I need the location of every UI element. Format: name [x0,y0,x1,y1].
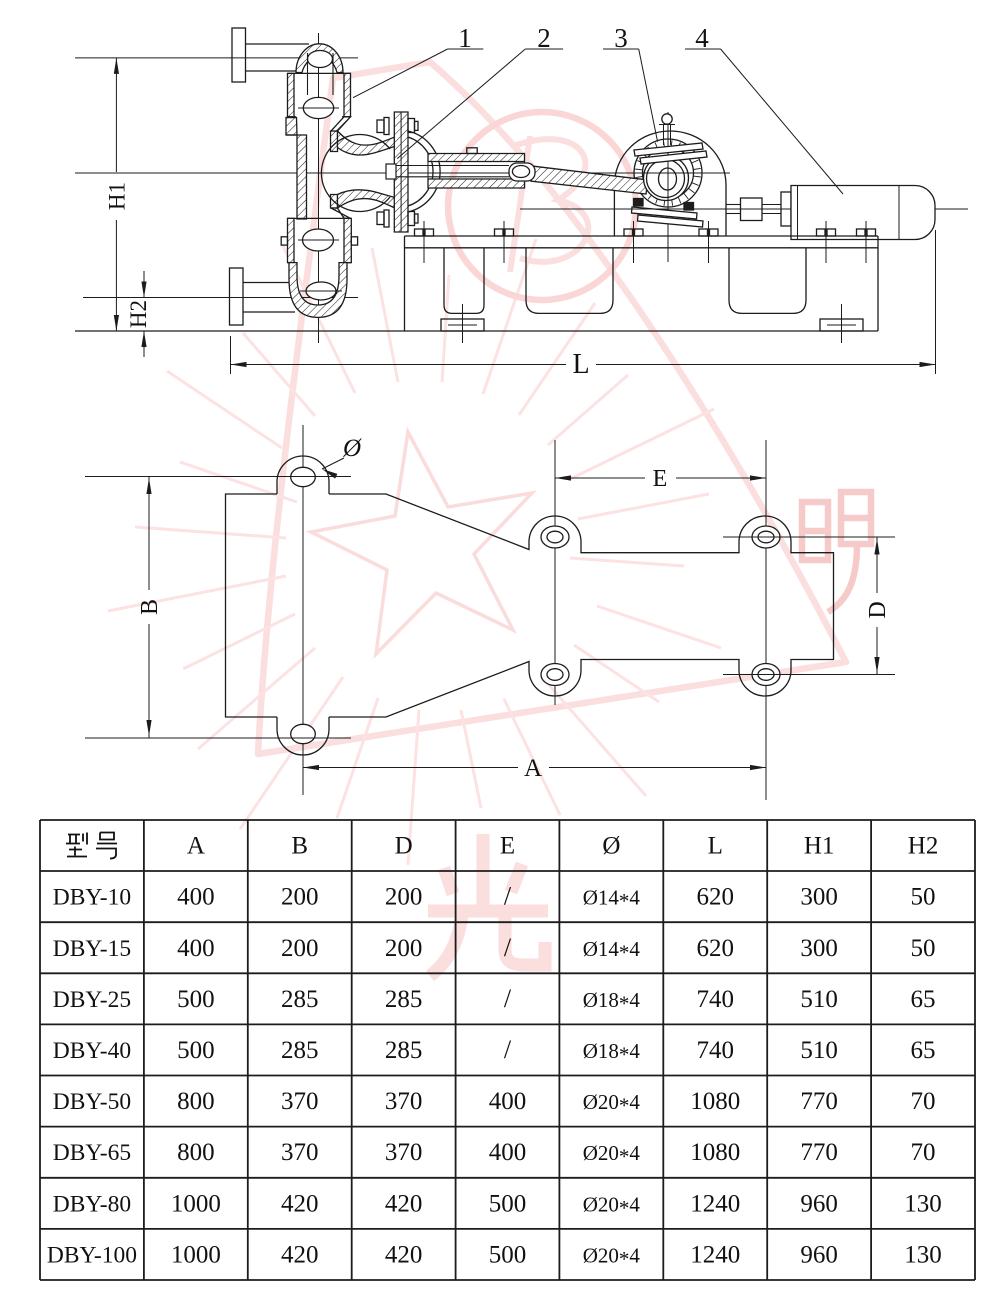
svg-text:370: 370 [385,1088,423,1115]
svg-text:200: 200 [385,935,423,962]
svg-text:1000: 1000 [171,1190,221,1217]
svg-text:/: / [504,1035,512,1064]
svg-text:1080: 1080 [690,1139,740,1166]
svg-text:740: 740 [697,986,735,1013]
svg-text:A: A [187,833,205,860]
svg-text:130: 130 [904,1190,942,1217]
svg-text:130: 130 [904,1241,942,1268]
svg-text:B: B [291,833,308,860]
svg-text:DBY-25: DBY-25 [53,987,131,1013]
svg-text:B: B [137,599,163,615]
svg-text:420: 420 [385,1241,423,1268]
svg-text:Ø: Ø [342,435,362,462]
svg-text:65: 65 [911,1037,936,1064]
svg-text:800: 800 [177,1139,215,1166]
svg-text:H2: H2 [908,833,939,860]
svg-text:960: 960 [800,1190,838,1217]
svg-text:200: 200 [281,884,319,911]
svg-text:E: E [500,833,515,860]
svg-text:1240: 1240 [690,1241,740,1268]
svg-text:370: 370 [281,1088,319,1115]
svg-text:285: 285 [385,986,423,1013]
svg-text:70: 70 [911,1088,936,1115]
svg-text:200: 200 [385,884,423,911]
svg-text:70: 70 [911,1139,936,1166]
svg-text:740: 740 [697,1037,735,1064]
svg-text:L: L [708,833,723,860]
svg-text:DBY-100: DBY-100 [47,1242,137,1268]
svg-text:620: 620 [697,935,735,962]
svg-text:/: / [504,933,512,962]
svg-text:DBY-10: DBY-10 [53,885,131,911]
svg-text:400: 400 [177,935,215,962]
svg-text:620: 620 [697,884,735,911]
svg-text:800: 800 [177,1088,215,1115]
svg-text:Ø: Ø [602,833,620,860]
svg-text:65: 65 [911,986,936,1013]
svg-text:Ø14*4: Ø14*4 [583,937,641,965]
svg-text:H2: H2 [126,300,151,328]
svg-text:DBY-50: DBY-50 [53,1089,131,1115]
svg-text:500: 500 [177,986,215,1013]
svg-text:370: 370 [385,1139,423,1166]
svg-text:Ø20*4: Ø20*4 [583,1192,641,1220]
svg-text:285: 285 [385,1037,423,1064]
svg-text:DBY-15: DBY-15 [53,936,131,962]
svg-text:Ø14*4: Ø14*4 [583,886,641,914]
svg-text:DBY-80: DBY-80 [53,1191,131,1217]
svg-text:H1: H1 [804,833,835,860]
svg-text:/: / [504,984,512,1013]
svg-text:A: A [524,755,542,782]
svg-text:DBY-40: DBY-40 [53,1038,131,1064]
svg-text:200: 200 [281,935,319,962]
svg-text:960: 960 [800,1241,838,1268]
svg-text:DBY-65: DBY-65 [53,1140,131,1166]
svg-text:Ø20*4: Ø20*4 [583,1141,641,1169]
svg-text:500: 500 [177,1037,215,1064]
svg-text:50: 50 [911,884,936,911]
svg-text:370: 370 [281,1139,319,1166]
svg-text:510: 510 [800,1037,838,1064]
svg-text:E: E [653,466,668,492]
svg-text:400: 400 [489,1139,527,1166]
svg-text:L: L [572,349,589,380]
svg-text:510: 510 [800,986,838,1013]
svg-text:1240: 1240 [690,1190,740,1217]
svg-text:1080: 1080 [690,1088,740,1115]
svg-text:Ø18*4: Ø18*4 [583,1039,641,1067]
svg-text:Ø20*4: Ø20*4 [583,1090,641,1118]
svg-text:285: 285 [281,1037,319,1064]
svg-text:770: 770 [800,1088,838,1115]
svg-text:D: D [395,833,413,860]
svg-text:420: 420 [281,1241,319,1268]
svg-text:/: / [504,882,512,911]
svg-text:500: 500 [489,1241,527,1268]
svg-text:D: D [865,601,891,618]
svg-text:770: 770 [800,1139,838,1166]
svg-text:400: 400 [489,1088,527,1115]
svg-text:Ø20*4: Ø20*4 [583,1243,641,1271]
svg-text:Ø18*4: Ø18*4 [583,988,641,1016]
svg-text:420: 420 [385,1190,423,1217]
svg-text:285: 285 [281,986,319,1013]
svg-text:50: 50 [911,935,936,962]
svg-text:500: 500 [489,1190,527,1217]
svg-text:300: 300 [800,884,838,911]
svg-text:1000: 1000 [171,1241,221,1268]
svg-text:400: 400 [177,884,215,911]
svg-text:420: 420 [281,1190,319,1217]
svg-text:300: 300 [800,935,838,962]
svg-text:H1: H1 [105,182,130,210]
